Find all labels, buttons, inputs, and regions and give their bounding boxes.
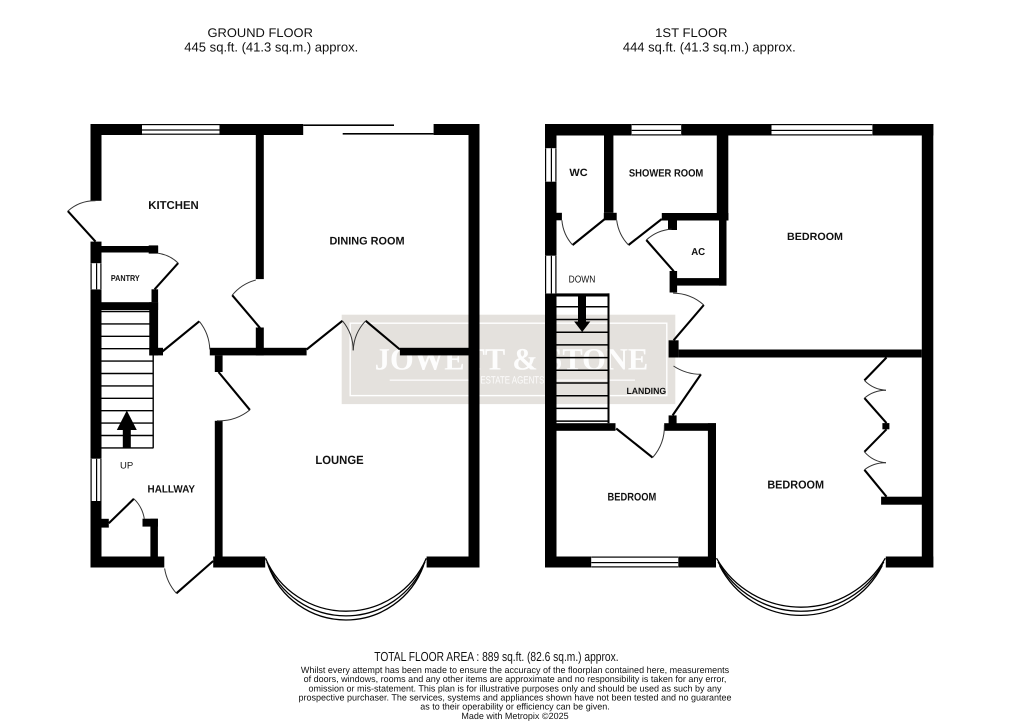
svg-text:ESTATE AGENTS: ESTATE AGENTS [480, 375, 544, 387]
svg-text:DINING ROOM: DINING ROOM [329, 235, 404, 247]
svg-text:444 sq.ft. (41.3 sq.m.) approx: 444 sq.ft. (41.3 sq.m.) approx. [623, 39, 796, 54]
svg-text:KITCHEN: KITCHEN [148, 200, 199, 212]
svg-text:PANTRY: PANTRY [111, 273, 140, 283]
svg-text:WC: WC [569, 167, 588, 179]
svg-text:UP: UP [120, 460, 133, 471]
svg-text:TOTAL FLOOR AREA : 889 sq.ft.: TOTAL FLOOR AREA : 889 sq.ft. (82.6 sq.m… [374, 649, 618, 664]
svg-text:Made with Metropix ©2025: Made with Metropix ©2025 [461, 711, 568, 721]
svg-text:HALLWAY: HALLWAY [148, 484, 196, 496]
svg-text:1ST FLOOR: 1ST FLOOR [655, 26, 727, 40]
svg-text:BEDROOM: BEDROOM [787, 231, 843, 243]
svg-text:GROUND FLOOR: GROUND FLOOR [208, 26, 313, 40]
svg-text:445 sq.ft. (41.3 sq.m.) approx: 445 sq.ft. (41.3 sq.m.) approx. [184, 39, 358, 54]
svg-text:SHOWER ROOM: SHOWER ROOM [629, 168, 704, 180]
svg-text:DOWN: DOWN [569, 275, 596, 286]
svg-text:BEDROOM: BEDROOM [767, 480, 824, 492]
svg-text:AC: AC [691, 247, 705, 258]
svg-text:LANDING: LANDING [626, 386, 666, 396]
svg-text:BEDROOM: BEDROOM [608, 492, 657, 504]
svg-text:LOUNGE: LOUNGE [315, 453, 363, 467]
svg-text:JOWETT & STONE: JOWETT & STONE [375, 342, 648, 377]
